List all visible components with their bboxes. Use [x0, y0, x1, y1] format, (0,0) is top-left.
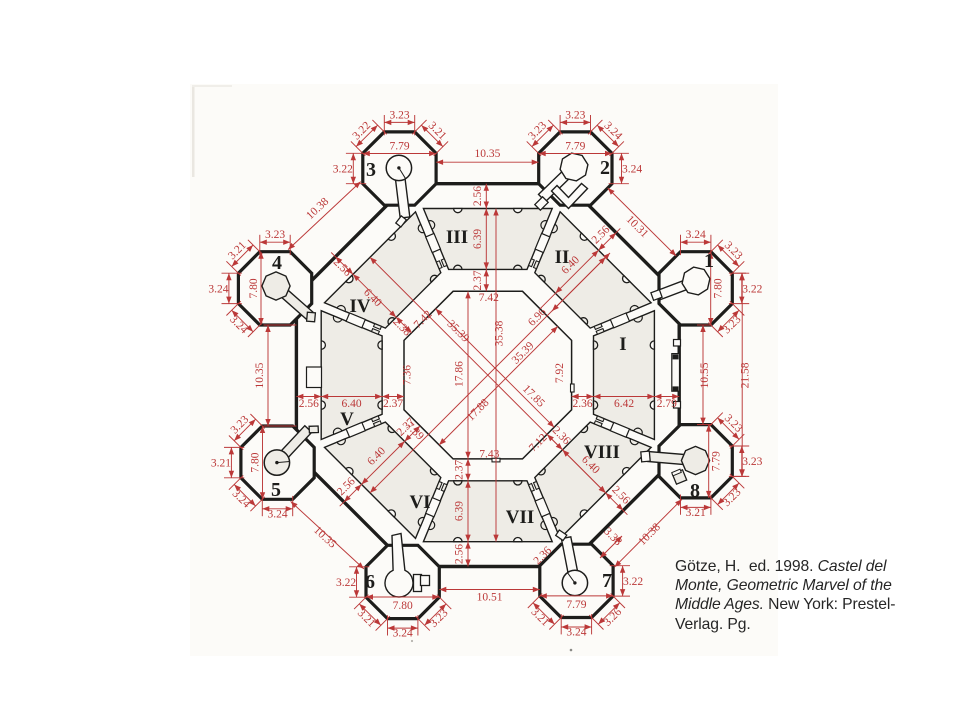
svg-text:35.38: 35.38	[493, 320, 505, 346]
svg-text:6.39: 6.39	[454, 501, 466, 521]
svg-text:3.23: 3.23	[265, 229, 285, 241]
svg-text:3.22: 3.22	[623, 576, 643, 588]
svg-text:7.80: 7.80	[713, 278, 725, 298]
svg-text:10.35: 10.35	[474, 148, 500, 160]
svg-text:6.39: 6.39	[472, 229, 484, 249]
svg-text:3.22: 3.22	[336, 577, 356, 589]
svg-text:3.24: 3.24	[686, 229, 706, 241]
svg-text:5: 5	[271, 479, 281, 501]
svg-text:2.56: 2.56	[472, 186, 484, 206]
svg-text:3.24: 3.24	[393, 628, 413, 640]
svg-text:6.42: 6.42	[614, 398, 634, 410]
svg-text:7: 7	[602, 570, 612, 592]
svg-text:3.22: 3.22	[742, 283, 762, 295]
svg-text:7.79: 7.79	[711, 451, 723, 471]
svg-text:17.86: 17.86	[454, 361, 466, 387]
svg-text:21.58: 21.58	[740, 362, 752, 388]
svg-text:VI: VI	[409, 492, 430, 513]
svg-text:7.79: 7.79	[389, 141, 409, 153]
svg-text:8: 8	[690, 480, 700, 502]
svg-text:3: 3	[366, 159, 376, 181]
svg-text:2.36: 2.36	[572, 398, 592, 410]
svg-text:2.79: 2.79	[657, 398, 677, 410]
svg-text:1: 1	[704, 250, 714, 272]
svg-text:7.36: 7.36	[401, 365, 413, 385]
svg-text:2.56: 2.56	[299, 398, 319, 410]
svg-text:4: 4	[272, 252, 282, 274]
svg-text:7.43: 7.43	[479, 449, 499, 461]
svg-text:V: V	[340, 409, 354, 430]
svg-text:7.80: 7.80	[250, 452, 262, 472]
svg-text:3.23: 3.23	[742, 456, 762, 468]
svg-text:6: 6	[365, 571, 375, 593]
svg-text:7.79: 7.79	[566, 599, 586, 611]
svg-text:3.21: 3.21	[686, 507, 706, 519]
svg-text:II: II	[555, 247, 570, 268]
svg-text:2.37: 2.37	[454, 459, 466, 479]
svg-text:2.37: 2.37	[472, 270, 484, 290]
svg-text:3.23: 3.23	[389, 109, 409, 121]
svg-text:3.23: 3.23	[565, 109, 585, 121]
svg-text:7.80: 7.80	[393, 600, 413, 612]
svg-text:7.79: 7.79	[565, 141, 585, 153]
svg-text:VIII: VIII	[584, 442, 620, 463]
svg-text:10.51: 10.51	[477, 592, 503, 604]
svg-text:I: I	[619, 334, 626, 355]
svg-text:3.21: 3.21	[211, 458, 231, 470]
svg-text:3.24: 3.24	[267, 508, 287, 520]
svg-text:3.24: 3.24	[622, 164, 642, 176]
svg-text:VII: VII	[506, 507, 535, 528]
svg-text:10.55: 10.55	[699, 362, 711, 388]
svg-text:IV: IV	[349, 296, 370, 317]
svg-text:2.37: 2.37	[383, 398, 403, 410]
svg-text:3.24: 3.24	[208, 283, 228, 295]
svg-text:3.24: 3.24	[566, 627, 586, 639]
svg-text:2: 2	[600, 157, 610, 179]
svg-text:10.35: 10.35	[254, 362, 266, 388]
svg-text:7.80: 7.80	[248, 278, 260, 298]
svg-text:2.56: 2.56	[454, 544, 466, 564]
svg-text:7.92: 7.92	[554, 363, 566, 383]
svg-text:III: III	[446, 227, 468, 248]
svg-text:3.22: 3.22	[333, 164, 353, 176]
